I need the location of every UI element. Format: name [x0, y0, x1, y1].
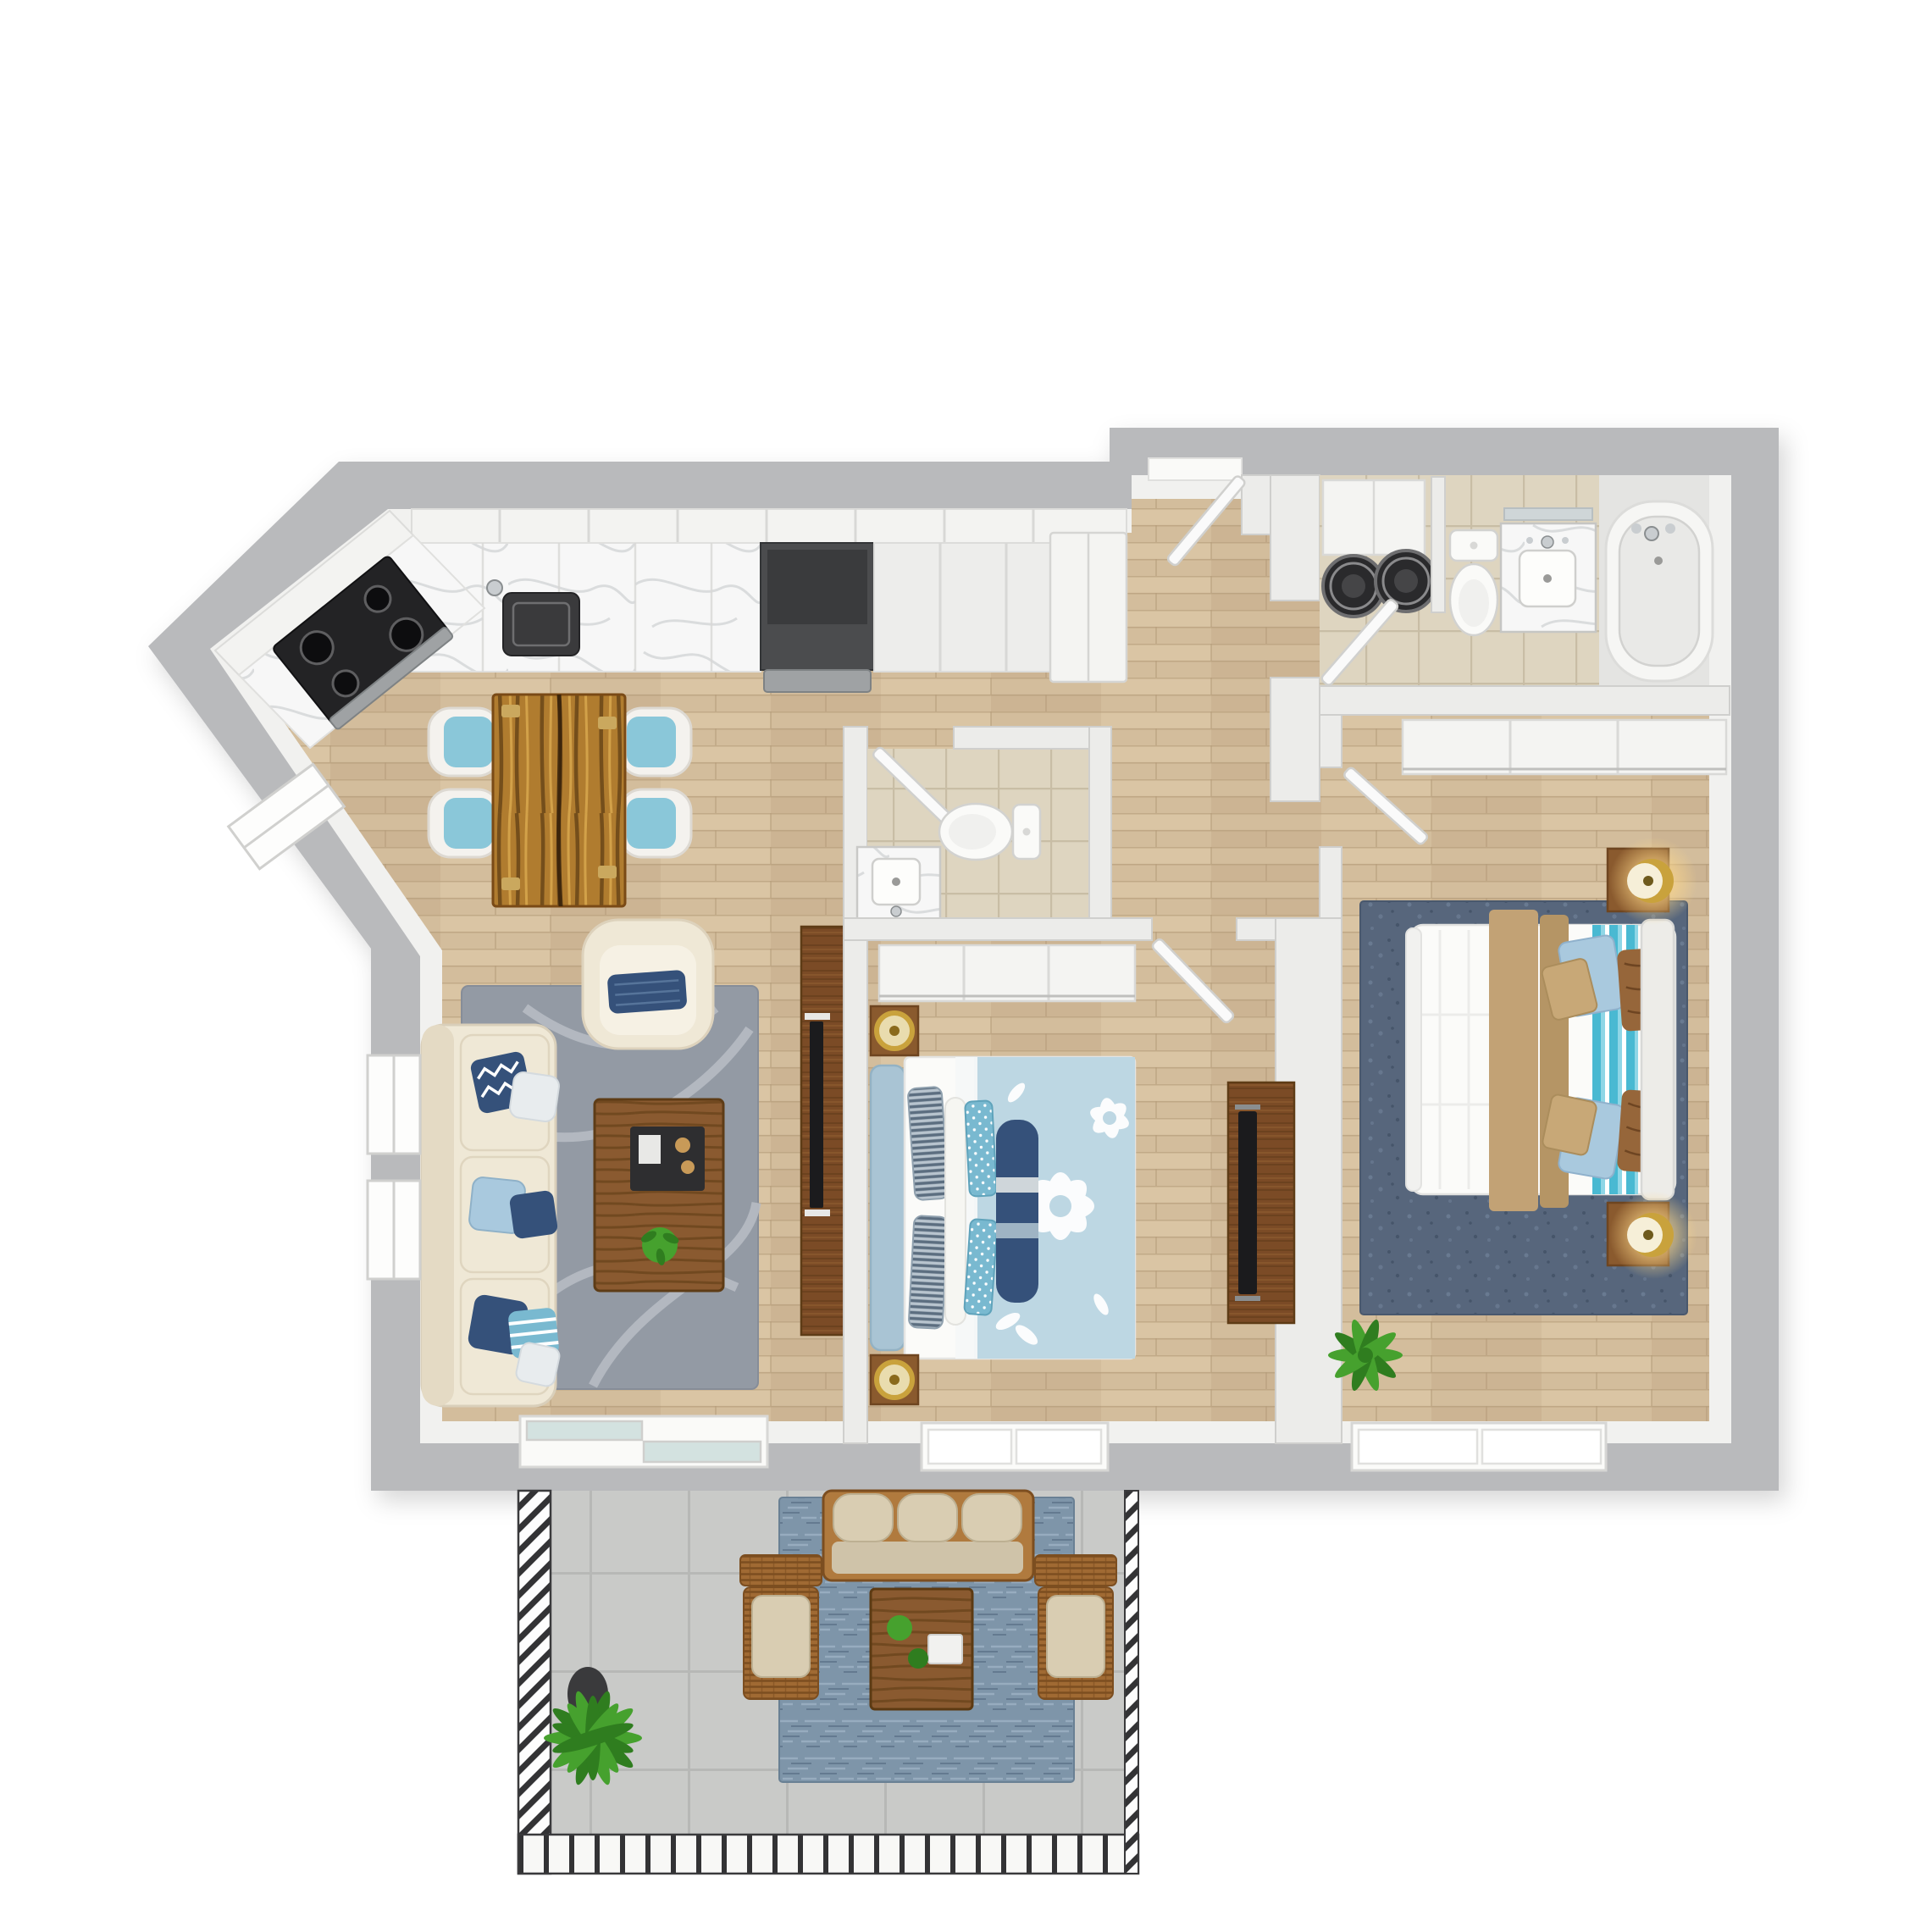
- range-steel-front: [764, 670, 871, 692]
- outdoor-table-tray: [928, 1635, 962, 1664]
- wall-living-bedroom: [844, 727, 867, 1443]
- pillow-bolster-white: [945, 1098, 966, 1325]
- bedroom-wall-top: [844, 918, 1152, 940]
- master-closet: [1403, 720, 1726, 774]
- dryer-drum: [1376, 551, 1437, 612]
- tv-bracket: [805, 1013, 830, 1020]
- dresser: [1228, 1082, 1294, 1323]
- chair-seat: [627, 717, 676, 767]
- chair-seat: [444, 717, 493, 767]
- pillow-striped: [907, 1087, 949, 1200]
- main-vanity: [1501, 508, 1596, 632]
- balcony-railing-bottom: [518, 1835, 1138, 1874]
- pillow-navy-roll: [996, 1120, 1038, 1303]
- tan-throw: [1489, 910, 1538, 1211]
- master-headboard: [1641, 920, 1674, 1199]
- sofa-pillow-light: [509, 1071, 561, 1123]
- outdoor-sofa-seat: [832, 1542, 1023, 1574]
- living-window: [368, 1055, 420, 1154]
- tub-drain: [1654, 556, 1663, 565]
- outdoor-chair-left: [740, 1555, 822, 1699]
- sofa: [422, 1025, 561, 1406]
- tub-faucet: [1645, 527, 1658, 540]
- master-wall-west-upper: [1320, 715, 1342, 767]
- sofa-pillow-navy: [509, 1190, 559, 1240]
- dining-chair: [429, 708, 500, 776]
- living-window: [368, 1181, 420, 1279]
- basin-drain: [1543, 574, 1552, 583]
- outdoor-chair-cushion: [1047, 1596, 1104, 1677]
- nightstand: [871, 1355, 918, 1404]
- vanity-mirror: [1504, 508, 1592, 520]
- sliding-balcony-door: [520, 1416, 767, 1467]
- dining-chair: [429, 789, 500, 857]
- nightstand: [871, 1006, 918, 1055]
- dining-table: [493, 695, 625, 906]
- coffee-table: [595, 1099, 723, 1291]
- bedroom-window: [922, 1423, 1108, 1470]
- outdoor-sofa-cushion: [833, 1494, 893, 1542]
- balcony: [518, 1491, 1138, 1874]
- tray-coaster: [675, 1138, 690, 1153]
- armchair: [583, 920, 713, 1049]
- foot-drape: [1406, 928, 1421, 1191]
- bed: [871, 1057, 1135, 1359]
- dining-chair: [620, 789, 691, 857]
- master-bed: [1406, 910, 1675, 1211]
- table-tab: [598, 717, 617, 729]
- laundry-partition: [1431, 477, 1445, 612]
- outdoor-coffee-table: [871, 1589, 972, 1709]
- chair-seat: [444, 798, 493, 849]
- pillow-teal: [965, 1100, 997, 1197]
- outdoor-table-plant: [887, 1615, 912, 1641]
- basin-drain: [892, 877, 900, 886]
- hall-bathroom: [857, 727, 1111, 940]
- upper-cabinets: [412, 509, 1127, 543]
- master-wall-west-lower: [1320, 847, 1342, 918]
- chair-seat: [627, 798, 676, 849]
- wall-tv: [810, 1021, 823, 1208]
- bedroom-wall-top: [1237, 918, 1276, 940]
- master-nightstand: [1608, 1191, 1697, 1279]
- sink-faucet: [487, 580, 502, 595]
- sofa-back: [422, 1025, 454, 1406]
- outdoor-sofa-cushion: [962, 1494, 1021, 1542]
- master-window: [1352, 1423, 1606, 1470]
- entry-side-wall: [1242, 475, 1272, 534]
- main-bathroom: [1320, 475, 1730, 715]
- dining-chair: [620, 708, 691, 776]
- main-bath-wall-bottom: [1320, 686, 1730, 715]
- hall-bath-wall-right: [1089, 727, 1111, 940]
- wall-range: [761, 543, 874, 692]
- bed-headboard: [871, 1066, 905, 1350]
- tray-coaster: [681, 1160, 695, 1174]
- main-toilet: [1450, 530, 1497, 635]
- bedroom-closet: [879, 945, 1135, 1001]
- pillow-teal: [964, 1219, 998, 1315]
- tv-bracket: [805, 1210, 830, 1216]
- flush-button: [1023, 828, 1031, 836]
- outdoor-sofa: [823, 1491, 1033, 1580]
- outdoor-chair-cushion: [752, 1596, 810, 1677]
- balcony-railing-left: [518, 1491, 551, 1874]
- media-wall: [801, 927, 847, 1335]
- outdoor-sofa-cushion: [898, 1494, 957, 1542]
- hall-bath-wall-top: [954, 727, 1111, 749]
- flush-button: [1470, 542, 1478, 550]
- bathtub: [1606, 501, 1713, 681]
- toilet: [939, 804, 1040, 860]
- balcony-railing-right: [1125, 1491, 1138, 1874]
- sofa-pillow-light: [515, 1342, 562, 1388]
- outdoor-chair-right: [1035, 1555, 1116, 1699]
- pillow-striped: [909, 1215, 949, 1329]
- master-nightstand: [1608, 837, 1697, 925]
- vanity-faucet: [891, 906, 901, 916]
- entry-threshold: [1149, 458, 1242, 480]
- live-edge-seam: [559, 695, 561, 906]
- table-tab: [501, 705, 520, 717]
- hall-wall-lower: [1270, 678, 1320, 801]
- refrigerator: [1050, 533, 1127, 682]
- table-tab: [598, 866, 617, 878]
- outdoor-table-plant: [908, 1648, 928, 1669]
- table-tab: [501, 877, 520, 890]
- sliding-door-pane: [527, 1421, 642, 1440]
- dresser-tv: [1238, 1111, 1257, 1294]
- hall-wall-upper: [1270, 475, 1320, 601]
- armchair-pillow: [607, 970, 688, 1014]
- tray-cards: [639, 1135, 661, 1164]
- hall-bath-vanity: [857, 847, 940, 920]
- floor-plan-stage: 3D top-down floor plan render of an apar…: [0, 0, 1932, 1932]
- floor-plan-render: 3D top-down floor plan render of an apar…: [0, 0, 1932, 1932]
- vanity-faucet: [1542, 536, 1553, 548]
- sliding-door-pane: [644, 1442, 761, 1462]
